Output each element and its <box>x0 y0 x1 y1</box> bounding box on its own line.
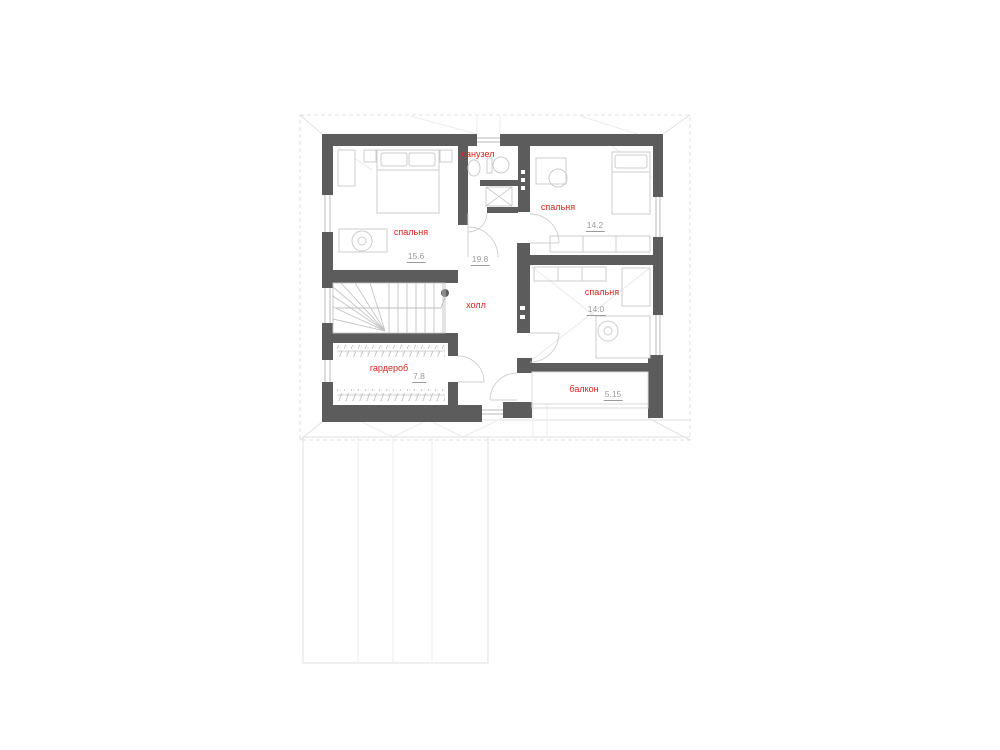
room-area-bedroom-mid-right: 14.0 <box>587 305 606 316</box>
room-label-bedroom-left: спальня <box>394 227 428 237</box>
room-label-bedroom-top-right: спальня <box>541 202 575 212</box>
room-area-hall: 19.8 <box>471 255 490 266</box>
room-area-bedroom-top-right: 14.2 <box>586 221 605 232</box>
room-label-hall: холл <box>466 300 486 310</box>
room-label-bedroom-mid-right: спальня <box>585 287 619 297</box>
floor-plan-drawing <box>0 0 1000 750</box>
wardrobe-rails <box>337 345 445 401</box>
room-label-bathroom: санузел <box>462 149 495 159</box>
room-label-wardrobe: гардероб <box>370 363 408 373</box>
floor-plan-page: санузел спальня 15.6 спальня 14.2 спальн… <box>0 0 1000 750</box>
room-area-balcony: 5.15 <box>604 390 623 401</box>
stairs <box>333 283 445 333</box>
room-label-balcony: балкон <box>569 384 598 394</box>
room-area-bedroom-left: 15.6 <box>407 252 426 263</box>
room-area-wardrobe: 7.8 <box>412 372 426 383</box>
